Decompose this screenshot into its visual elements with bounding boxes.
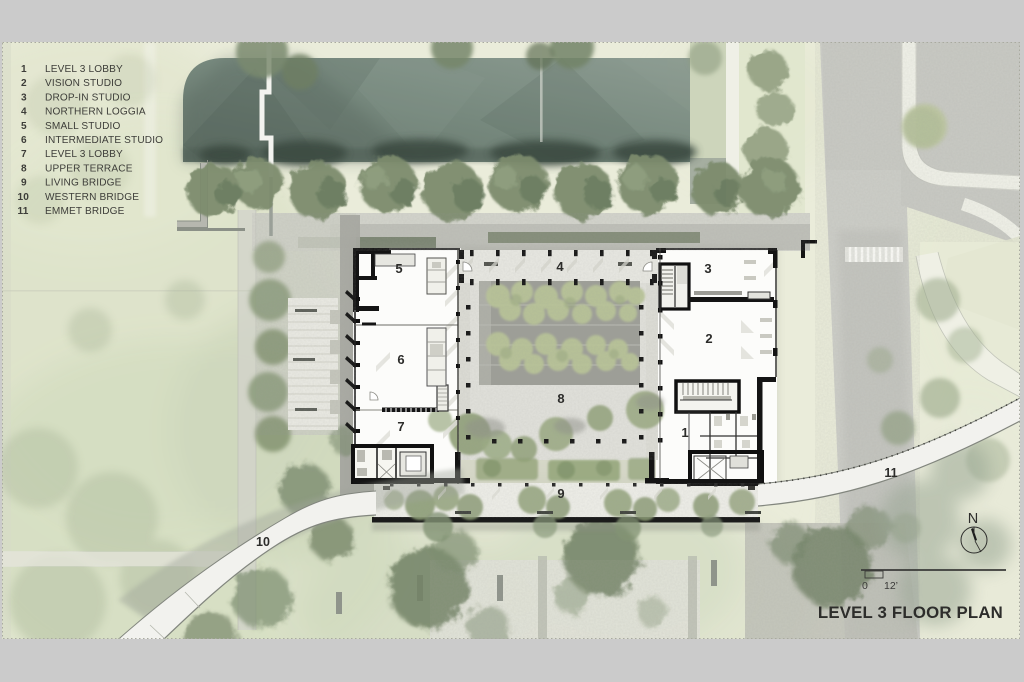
svg-text:9: 9 (21, 178, 27, 189)
svg-text:1: 1 (681, 425, 688, 440)
svg-text:3: 3 (704, 261, 711, 276)
svg-text:9: 9 (557, 486, 564, 501)
svg-text:8: 8 (557, 391, 564, 406)
svg-text:4: 4 (21, 107, 27, 118)
svg-text:10: 10 (256, 535, 270, 549)
svg-text:3: 3 (21, 92, 27, 103)
svg-text:5: 5 (395, 261, 402, 276)
svg-text:N: N (968, 511, 978, 527)
svg-text:1: 1 (21, 64, 27, 75)
svg-text:VISION STUDIO: VISION STUDIO (45, 78, 122, 89)
svg-text:6: 6 (397, 352, 404, 367)
svg-text:11: 11 (884, 466, 897, 480)
svg-text:5: 5 (21, 121, 27, 132)
svg-text:12’: 12’ (884, 580, 898, 592)
svg-text:NORTHERN LOGGIA: NORTHERN LOGGIA (45, 107, 146, 118)
svg-text:4: 4 (556, 259, 564, 274)
svg-text:LIVING BRIDGE: LIVING BRIDGE (45, 178, 122, 189)
svg-text:LEVEL 3 FLOOR PLAN: LEVEL 3 FLOOR PLAN (818, 603, 1003, 622)
svg-text:LEVEL 3 LOBBY: LEVEL 3 LOBBY (45, 64, 123, 75)
svg-text:11: 11 (18, 206, 29, 217)
svg-text:UPPER TERRACE: UPPER TERRACE (45, 163, 133, 174)
svg-text:WESTERN BRIDGE: WESTERN BRIDGE (45, 192, 139, 203)
svg-text:6: 6 (21, 135, 27, 146)
svg-text:10: 10 (18, 192, 30, 203)
svg-text:INTERMEDIATE STUDIO: INTERMEDIATE STUDIO (45, 135, 163, 146)
svg-text:EMMET BRIDGE: EMMET BRIDGE (45, 206, 125, 217)
svg-text:DROP-IN STUDIO: DROP-IN STUDIO (45, 92, 131, 103)
svg-text:7: 7 (21, 149, 27, 160)
svg-text:LEVEL 3 LOBBY: LEVEL 3 LOBBY (45, 149, 123, 160)
svg-text:SMALL STUDIO: SMALL STUDIO (45, 121, 120, 132)
svg-text:7: 7 (397, 419, 404, 434)
svg-text:0: 0 (862, 580, 868, 592)
svg-text:2: 2 (21, 78, 27, 89)
svg-text:8: 8 (21, 163, 27, 174)
svg-text:2: 2 (705, 331, 712, 346)
